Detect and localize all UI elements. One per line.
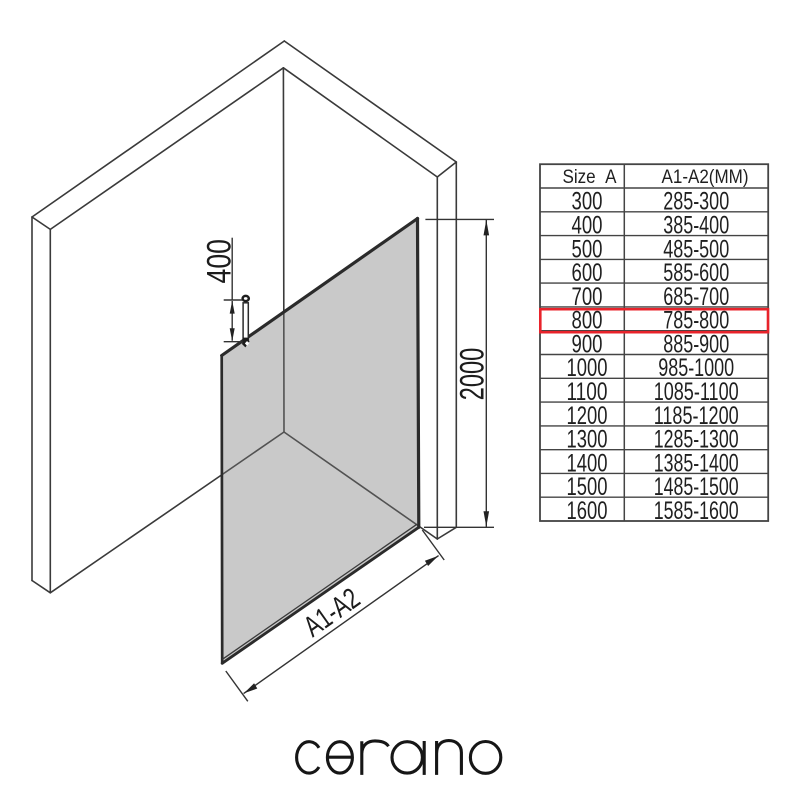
svg-text:A1-A2(MM): A1-A2(MM) — [662, 167, 749, 188]
svg-text:1585-1600: 1585-1600 — [654, 497, 739, 525]
svg-text:2000: 2000 — [453, 348, 491, 401]
svg-text:400: 400 — [201, 239, 239, 284]
svg-text:Size A: Size A — [563, 167, 617, 188]
svg-text:1600: 1600 — [567, 497, 608, 525]
